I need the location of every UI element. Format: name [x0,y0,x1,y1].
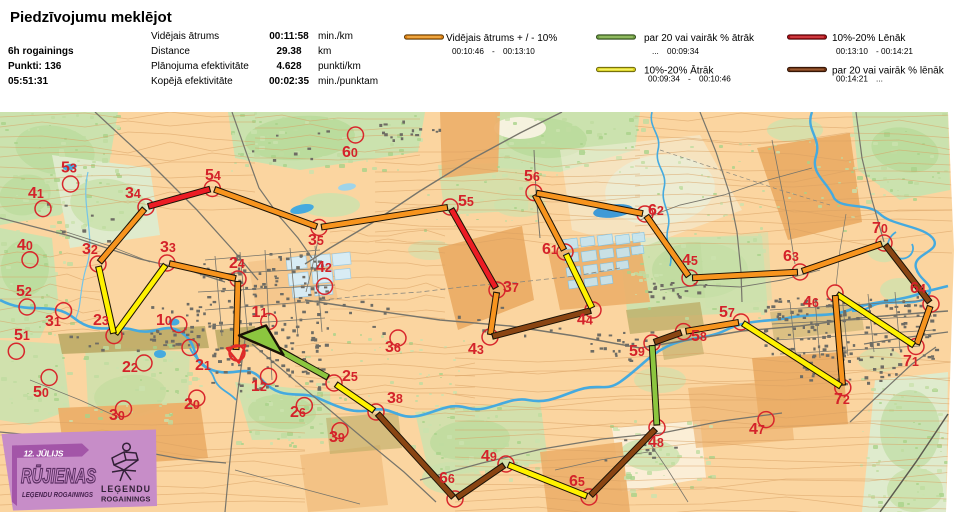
svg-text:00:10:46 - 00:13:10: 00:10:46 - 00:13:10 [452,47,535,56]
svg-text:00:11:58: 00:11:58 [269,31,309,42]
svg-text:37: 37 [503,279,519,296]
svg-text:43: 43 [468,341,484,358]
svg-text:42: 42 [316,259,332,276]
svg-text:LEĢENDU: LEĢENDU [101,484,151,494]
svg-text:31: 31 [45,313,61,330]
svg-text:51: 51 [14,327,30,344]
svg-text:66: 66 [439,470,455,487]
svg-text:50: 50 [33,384,49,401]
svg-text:30: 30 [109,407,125,424]
svg-text:55: 55 [458,193,474,210]
svg-text:Vidējais ātrums + / - 10%: Vidējais ātrums + / - 10% [446,33,557,44]
svg-text:21: 21 [195,357,211,374]
svg-text:33: 33 [160,239,176,256]
svg-text:56: 56 [524,168,540,185]
svg-text:70: 70 [872,220,888,237]
svg-text:38: 38 [387,390,403,407]
svg-text:59: 59 [629,343,645,360]
svg-text:49: 49 [481,448,497,465]
svg-text:punkti/km: punkti/km [318,61,361,72]
svg-text:12. JŪLIJS: 12. JŪLIJS [24,449,64,459]
svg-text:45: 45 [682,252,698,269]
svg-text:41: 41 [28,185,44,202]
svg-text:54: 54 [205,167,221,184]
svg-text:61: 61 [542,241,558,258]
svg-text:60: 60 [342,144,358,161]
svg-text:72: 72 [834,391,850,408]
svg-text:63: 63 [783,248,799,265]
svg-text:57: 57 [719,304,735,321]
svg-text:min./punktam: min./punktam [318,76,378,87]
svg-text:65: 65 [569,473,585,490]
svg-text:34: 34 [125,185,141,202]
svg-text:48: 48 [648,434,664,451]
svg-text:46: 46 [803,294,819,311]
svg-text:10%-20% Lēnāk: 10%-20% Lēnāk [832,33,906,44]
svg-text:58: 58 [691,328,707,345]
svg-text:32: 32 [82,241,98,258]
svg-text:47: 47 [749,421,765,438]
svg-text:00:09:34 - 00:10:46: 00:09:34 - 00:10:46 [648,75,731,84]
svg-text:ROGAININGS: ROGAININGS [101,495,151,504]
svg-text:Punkti: 136: Punkti: 136 [8,61,62,72]
svg-text:4.628: 4.628 [276,61,301,72]
svg-text:00:02:35: 00:02:35 [269,76,309,87]
svg-text:Piedzīvojumu meklējot: Piedzīvojumu meklējot [10,9,172,26]
svg-text:26: 26 [290,404,306,421]
svg-text:Distance: Distance [151,46,190,57]
svg-text:par 20 vai vairāk % ātrāk: par 20 vai vairāk % ātrāk [644,33,755,44]
svg-text:36: 36 [385,339,401,356]
svg-text:23: 23 [93,312,109,329]
svg-text:LEĢENDU ROGAININGS: LEĢENDU ROGAININGS [22,490,93,499]
svg-text:20: 20 [184,396,200,413]
svg-text:44: 44 [577,312,593,329]
svg-text:00:14:21 ...: 00:14:21 ... [836,75,883,84]
svg-text:11: 11 [252,304,268,321]
svg-text:35: 35 [308,232,324,249]
svg-text:29.38: 29.38 [276,46,301,57]
svg-text:... 00:09:34: ... 00:09:34 [652,47,699,56]
svg-text:71: 71 [903,353,919,370]
svg-text:53: 53 [61,160,77,177]
svg-text:Kopējā efektivitāte: Kopējā efektivitāte [151,76,233,87]
svg-text:62: 62 [648,202,664,219]
svg-text:39: 39 [329,429,345,446]
svg-text:22: 22 [122,359,138,376]
svg-text:Plānojuma efektivitāte: Plānojuma efektivitāte [151,61,249,72]
svg-text:km: km [318,46,331,57]
svg-text:12: 12 [251,378,267,395]
svg-text:RŪJIENAS: RŪJIENAS [21,465,96,488]
svg-text:10: 10 [156,312,172,329]
svg-text:min./km: min./km [318,31,353,42]
svg-text:25: 25 [342,368,358,385]
svg-text:05:51:31: 05:51:31 [8,76,48,87]
svg-text:Vidējais ātrums: Vidējais ātrums [151,31,219,42]
svg-text:00:13:10 - 00:14:21: 00:13:10 - 00:14:21 [836,47,913,56]
svg-text:24: 24 [229,255,245,272]
svg-text:40: 40 [17,237,33,254]
svg-text:52: 52 [16,283,32,300]
svg-text:6h rogainings: 6h rogainings [8,46,74,57]
svg-text:64: 64 [910,280,926,297]
